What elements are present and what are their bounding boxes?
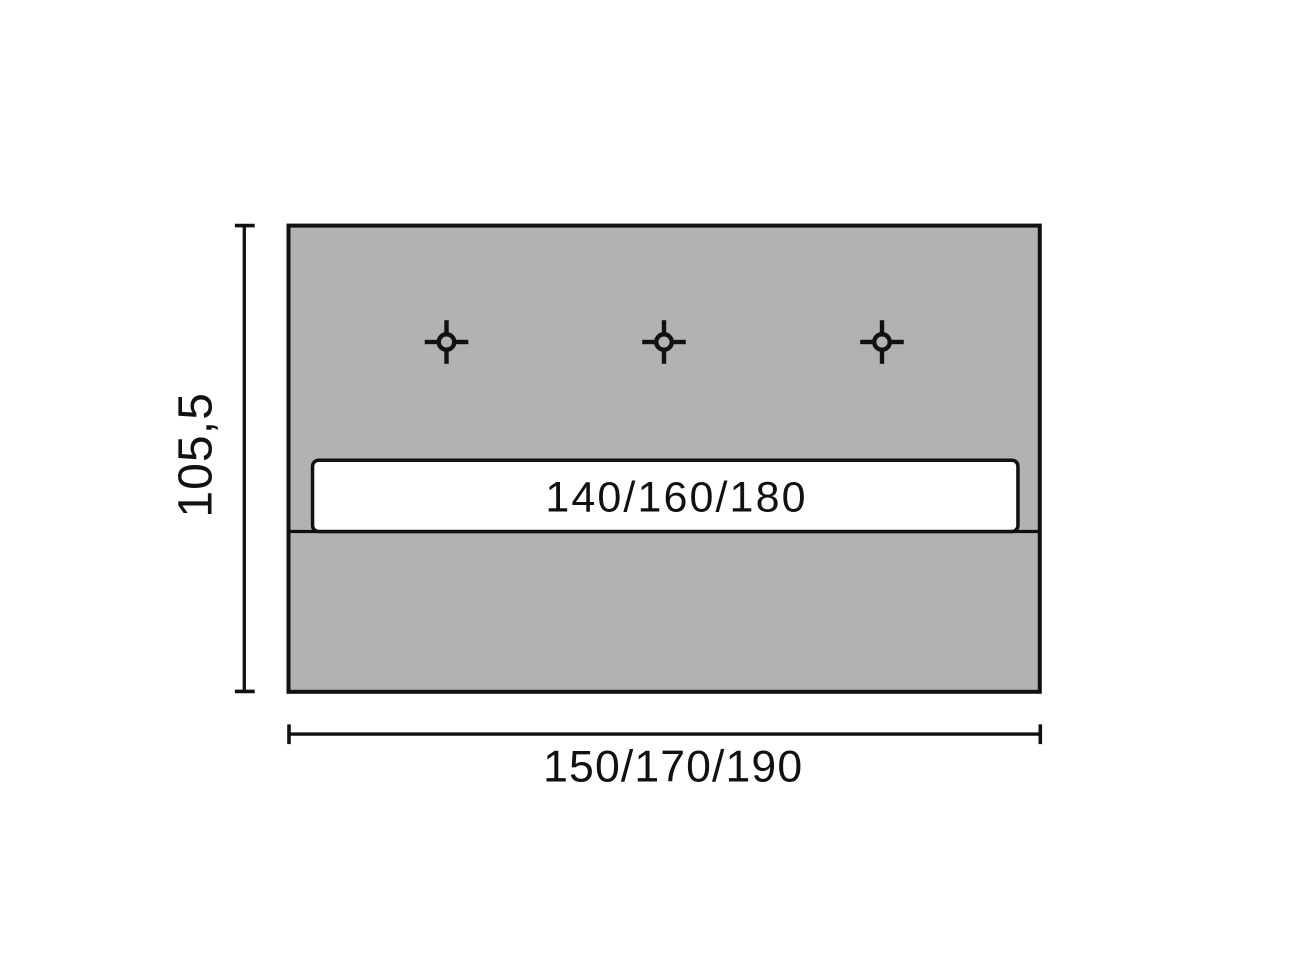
svg-text:105,5: 105,5 (170, 392, 223, 518)
svg-text:140/160/180: 140/160/180 (545, 474, 807, 522)
svg-text:150/170/190: 150/170/190 (543, 743, 803, 792)
